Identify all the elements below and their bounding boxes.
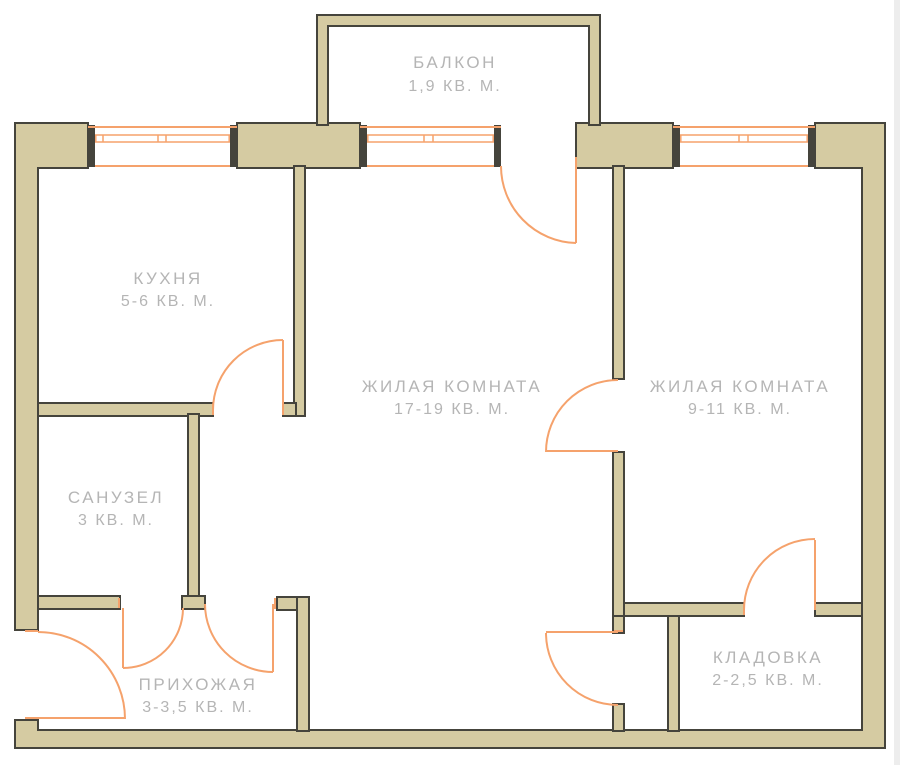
room-label-kitchen-area: 5-6 КВ. М. <box>121 293 215 310</box>
wall-closet-stub-lower <box>613 704 624 731</box>
storage-door <box>744 539 815 615</box>
wall-living-divider-lower <box>613 452 624 616</box>
room-label-balcony-area: 1,9 КВ. М. <box>408 78 501 95</box>
page-edge-shadow <box>894 0 900 765</box>
wall-storage-left <box>668 616 679 731</box>
wall-top-pier-middle-left <box>237 123 360 168</box>
window-post <box>494 125 501 167</box>
window-post <box>808 125 815 167</box>
window-post <box>673 125 680 167</box>
wall-left-top <box>15 123 88 630</box>
doors <box>25 157 815 719</box>
wall-kitchen-bottom-left <box>38 403 213 416</box>
room-label-bathroom-area: 3 КВ. М. <box>78 512 154 529</box>
windows <box>88 125 815 167</box>
living-room-2-window <box>673 125 815 167</box>
room-label-living1-area: 17-19 КВ. М. <box>394 401 510 418</box>
wall-kitchen-living-divider <box>294 166 305 416</box>
wall-hallway-right <box>297 597 309 731</box>
room-label-storage-area: 2-2,5 КВ. М. <box>712 672 824 689</box>
room-label-hallway-name: ПРИХОЖАЯ <box>139 675 258 694</box>
window-post <box>360 125 367 167</box>
entrance-door <box>25 631 125 719</box>
window-post <box>230 125 237 167</box>
wall-living-divider-upper <box>613 166 624 379</box>
wall-bathroom-bottom <box>38 596 120 609</box>
balcony-door <box>501 157 576 243</box>
kitchen-door <box>213 340 283 415</box>
kitchen-window <box>88 125 237 167</box>
room-label-bathroom-name: САНУЗЕЛ <box>68 488 164 507</box>
room-label-kitchen-name: КУХНЯ <box>133 269 202 288</box>
wall-bathroom-right <box>188 414 199 598</box>
room-label-hallway-area: 3-3,5 КВ. М. <box>142 699 254 716</box>
bathroom-door <box>119 598 183 668</box>
room-label-storage-name: КЛАДОВКА <box>713 648 823 667</box>
wall-storage-top-right <box>815 603 862 616</box>
wall-kitchen-bottom-right <box>283 403 296 416</box>
room-label-living2-name: ЖИЛАЯ КОМНАТА <box>650 377 830 396</box>
window-post <box>88 125 95 167</box>
wall-top-pier-middle-right <box>576 123 673 168</box>
floor-plan-svg: БАЛКОН 1,9 КВ. М. КУХНЯ 5-6 КВ. М. САНУЗ… <box>0 0 900 765</box>
hallway-door <box>205 598 275 672</box>
wall-storage-top-left <box>624 603 744 616</box>
floor-plan: БАЛКОН 1,9 КВ. М. КУХНЯ 5-6 КВ. М. САНУЗ… <box>0 0 900 765</box>
room-label-living1-name: ЖИЛАЯ КОМНАТА <box>362 377 542 396</box>
interior-walls <box>38 166 862 731</box>
closet-door <box>546 631 623 705</box>
wall-bathroom-right-base <box>182 596 205 609</box>
room-label-balcony-name: БАЛКОН <box>413 53 497 72</box>
balcony-window <box>360 125 501 167</box>
room-label-living2-area: 9-11 КВ. М. <box>688 401 792 418</box>
living-rooms-door <box>546 380 618 452</box>
